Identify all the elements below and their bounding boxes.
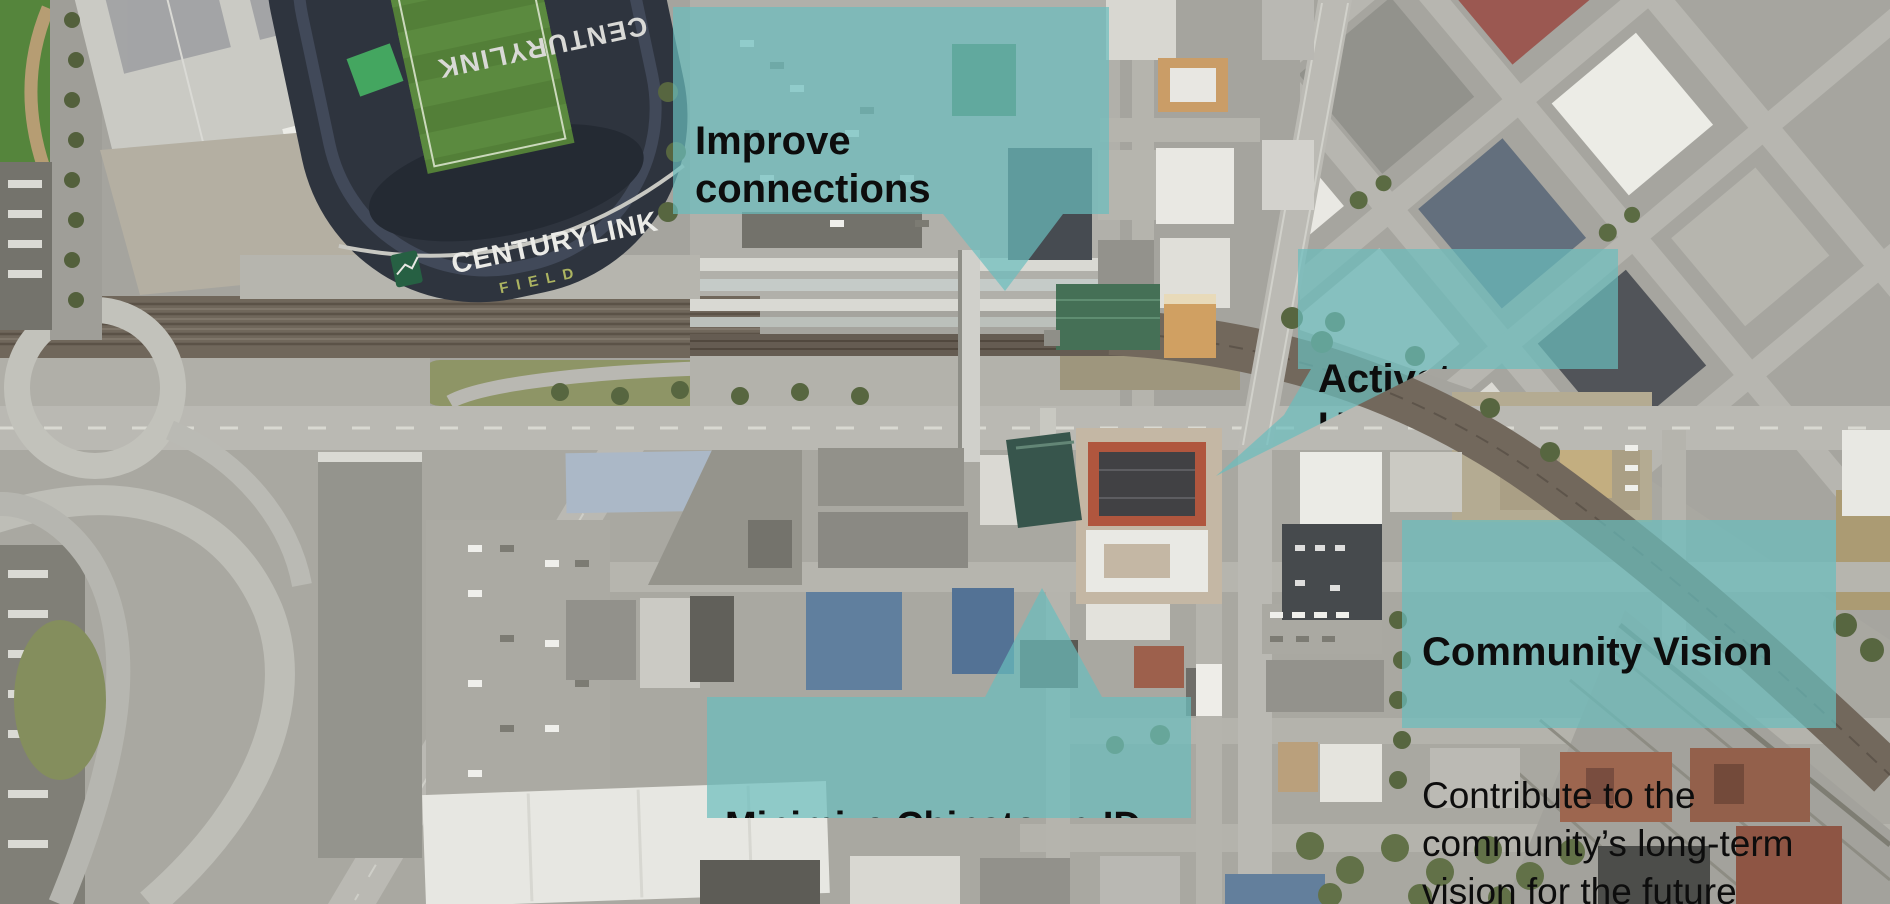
callout-community-vision: Community Vision Contribute to the commu… bbox=[1402, 520, 1836, 728]
callout-body: Contribute to the community’s long-term … bbox=[1422, 772, 1836, 904]
callout-title: Improve connections bbox=[695, 117, 1109, 213]
callout-title: Community Vision bbox=[1422, 628, 1836, 676]
annotated-aerial-map: CENTURYLINK FIELD CENTURYLINK bbox=[0, 0, 1890, 904]
